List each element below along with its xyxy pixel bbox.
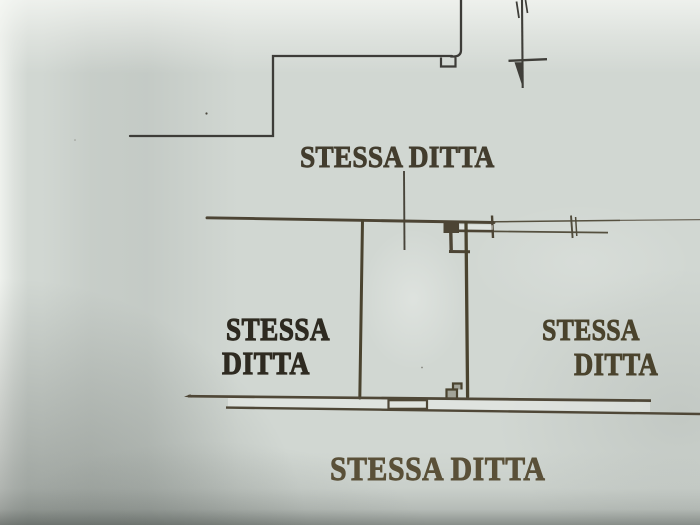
svg-text:STESSA: STESSA	[542, 314, 640, 347]
svg-text:DITTA: DITTA	[222, 346, 310, 381]
svg-text:STESSA DITTA: STESSA DITTA	[330, 450, 545, 487]
svg-text:STESSA: STESSA	[226, 313, 330, 347]
svg-text:DITTA: DITTA	[574, 348, 658, 383]
svg-text:STESSA DITTA: STESSA DITTA	[300, 141, 495, 174]
